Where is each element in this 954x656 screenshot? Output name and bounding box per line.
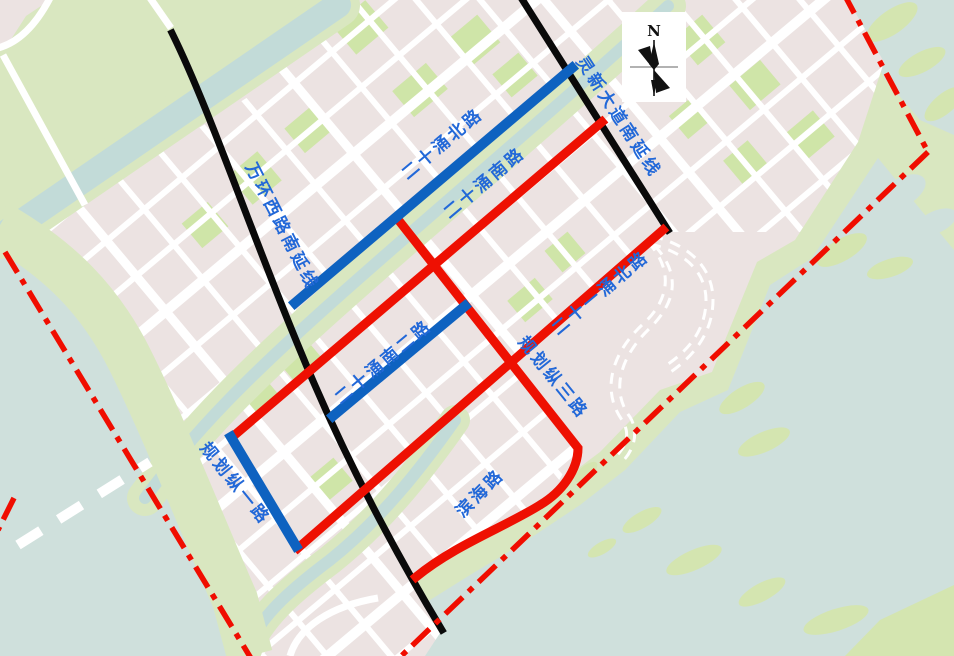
planning-map: 灵新大道南延线 万环西路南延线 二十涌北路 二十涌南路 二十一涌北路 二十涌南二… bbox=[0, 0, 954, 656]
map-canvas: 灵新大道南延线 万环西路南延线 二十涌北路 二十涌南路 二十一涌北路 二十涌南二… bbox=[0, 0, 954, 656]
compass: N bbox=[622, 12, 686, 102]
compass-north-letter: N bbox=[647, 22, 661, 40]
